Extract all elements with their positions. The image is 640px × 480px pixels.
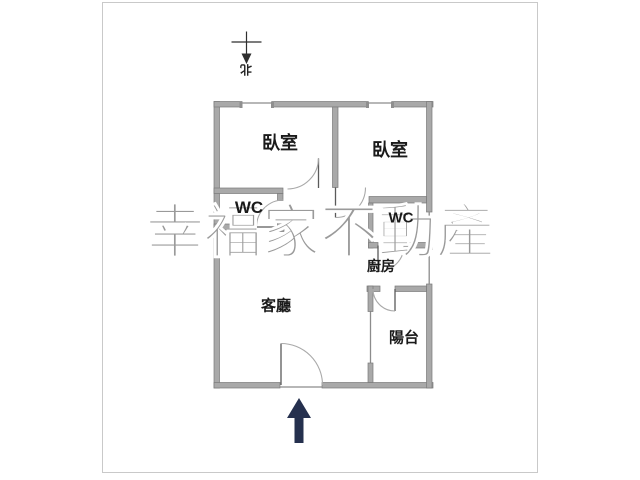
wall-right-a (427, 102, 433, 213)
room-label-balcony: 陽台 (389, 327, 419, 348)
door-entrance (281, 344, 323, 386)
north-label: 北 (240, 62, 252, 79)
balcony-divider-stub-bottom (368, 363, 373, 383)
wall-right-c (427, 284, 433, 388)
door-kitchen-balcony (373, 289, 395, 311)
window-bedroom1-cap-right (271, 102, 274, 109)
door-bedroom1 (288, 158, 319, 189)
wall-kitchen-south-b (395, 286, 427, 292)
agency-watermark: 幸福家不動產 (144, 201, 496, 265)
wall-bottom-a (214, 383, 280, 389)
window-bedroom1-cap-left (240, 102, 243, 109)
balcony-divider-stub-top (368, 286, 373, 312)
room-label-wc1: WC (235, 198, 263, 218)
entrance-arrow-icon (287, 398, 311, 443)
wall-bedroom-divider (333, 107, 339, 188)
room-label-bedroom1: 臥室 (262, 129, 298, 155)
room-label-bedroom2: 臥室 (372, 136, 408, 162)
wall-bottom-b (322, 383, 433, 389)
room-label-kitchen: 廚房 (367, 256, 395, 276)
north-indicator (232, 32, 262, 65)
room-label-wc2: WC (389, 210, 414, 227)
wall-bedroom1-south (214, 188, 283, 194)
wall-top-b (272, 102, 368, 108)
floor-plan-page: 幸福家不動產 臥室 臥室 WC WC 廚房 客廳 陽台 北 (0, 0, 640, 480)
window-bedroom2-cap-right (391, 102, 394, 109)
wall-top-a (214, 102, 242, 108)
window-bedroom2-cap-left (366, 102, 369, 109)
room-label-living-room: 客廳 (261, 295, 291, 316)
